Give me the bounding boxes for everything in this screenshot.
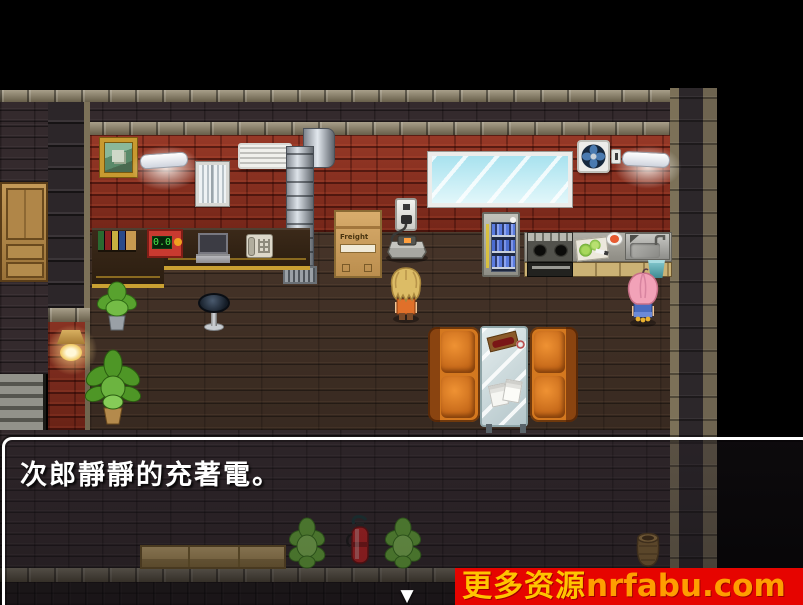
fridge-sticker xyxy=(510,217,516,223)
counter-gold-inlay xyxy=(168,258,306,260)
sofa-cushion xyxy=(441,376,475,418)
oven-handle xyxy=(532,266,570,269)
bottle-shelf xyxy=(492,224,515,237)
cabinet-drawer xyxy=(6,262,44,278)
dialogue-continue-arrow[interactable]: ▼ xyxy=(395,586,419,605)
stove-controls xyxy=(528,233,572,241)
inner-wall-top-trim xyxy=(48,122,670,135)
picture-frame xyxy=(100,138,137,177)
gas-stove xyxy=(527,232,573,262)
potted-plant-small xyxy=(93,276,141,332)
sofa-left xyxy=(428,327,480,422)
dialogue-text: 次郎靜靜的充著電。 xyxy=(20,453,281,492)
bar-stool xyxy=(198,293,230,333)
register-button xyxy=(174,238,182,246)
freight-box: Freight xyxy=(334,210,382,278)
light-switch xyxy=(611,149,621,164)
laptop xyxy=(196,233,230,263)
box-shipping-strip xyxy=(340,244,376,253)
phone-handset xyxy=(248,237,255,256)
left-pillar-cap xyxy=(48,308,90,322)
wall-lamp-bulb xyxy=(60,344,82,361)
register-screen: 0.0 xyxy=(152,236,172,249)
laptop-keyboard xyxy=(196,254,230,263)
fridge-handle xyxy=(486,224,489,268)
painting-castle xyxy=(112,150,124,162)
wall-window xyxy=(428,152,572,207)
stairs xyxy=(0,374,46,430)
cutting-board xyxy=(575,236,609,261)
knife xyxy=(595,248,609,255)
fluorescent-light-right xyxy=(622,151,671,168)
cabinet-doors xyxy=(6,188,44,240)
oven-front xyxy=(527,262,573,277)
robot-vacuum-jiro[interactable] xyxy=(383,230,431,264)
left-pillar xyxy=(48,102,90,308)
bottle-shelf xyxy=(492,240,515,253)
phone-keypad xyxy=(258,239,270,253)
stove-burner xyxy=(533,244,547,257)
outer-wall-planks xyxy=(0,102,717,122)
faucet xyxy=(654,235,668,247)
register-display-value: 0.0 xyxy=(153,237,171,248)
freight-label: Freight xyxy=(340,234,368,241)
character-pink-girl[interactable] xyxy=(623,268,663,328)
drink-fridge xyxy=(482,212,520,277)
telephone xyxy=(246,234,273,258)
bar-counter-main xyxy=(164,228,310,270)
watermark-text-cn: 更多资源 xyxy=(462,572,586,602)
box-mark xyxy=(342,264,350,272)
sofa-cushion xyxy=(534,331,565,373)
fridge-glass xyxy=(491,222,516,272)
air-vent xyxy=(238,143,292,169)
books xyxy=(98,231,136,252)
bottle-shelf xyxy=(492,256,515,269)
fan-blades xyxy=(581,144,606,169)
left-wall-mid xyxy=(0,282,48,374)
tomato xyxy=(610,235,619,243)
kitchen-sink xyxy=(625,233,670,260)
table-leg xyxy=(520,424,526,433)
window-glass-streaks xyxy=(432,156,568,203)
character-blonde-kid[interactable] xyxy=(386,266,426,324)
stool-seat xyxy=(198,293,230,313)
tomato-plate xyxy=(606,232,623,246)
sofa-cushion xyxy=(534,376,565,418)
potted-plant-large xyxy=(84,326,142,426)
cabinet-drawer xyxy=(6,244,44,260)
table-leg xyxy=(486,424,492,433)
glass-table xyxy=(480,326,528,427)
wine-bottle xyxy=(492,336,515,348)
outer-wall-top-trim xyxy=(0,90,717,102)
sofa-right xyxy=(530,327,578,422)
cash-register: 0.0 xyxy=(147,229,183,258)
watermark-text-site: nrfabu.com xyxy=(586,571,786,602)
game-viewport: Freight xyxy=(0,0,803,605)
wooden-cabinet xyxy=(0,182,48,282)
switch-toggle xyxy=(615,153,618,160)
exhaust-fan xyxy=(577,140,610,173)
left-wall-upper xyxy=(0,122,48,182)
sofa-cushion xyxy=(441,331,475,373)
box-tape xyxy=(336,226,380,229)
watermark-banner[interactable]: 更多资源nrfabu.com xyxy=(455,568,803,605)
wine-glass xyxy=(516,340,525,349)
sink-tri xyxy=(630,235,639,243)
box-mark xyxy=(364,264,372,272)
stove-burner xyxy=(554,244,568,257)
laptop-screen xyxy=(198,233,228,254)
blinds-divider xyxy=(211,165,213,203)
window-blinds xyxy=(196,162,229,206)
outlet-slots xyxy=(403,204,410,210)
